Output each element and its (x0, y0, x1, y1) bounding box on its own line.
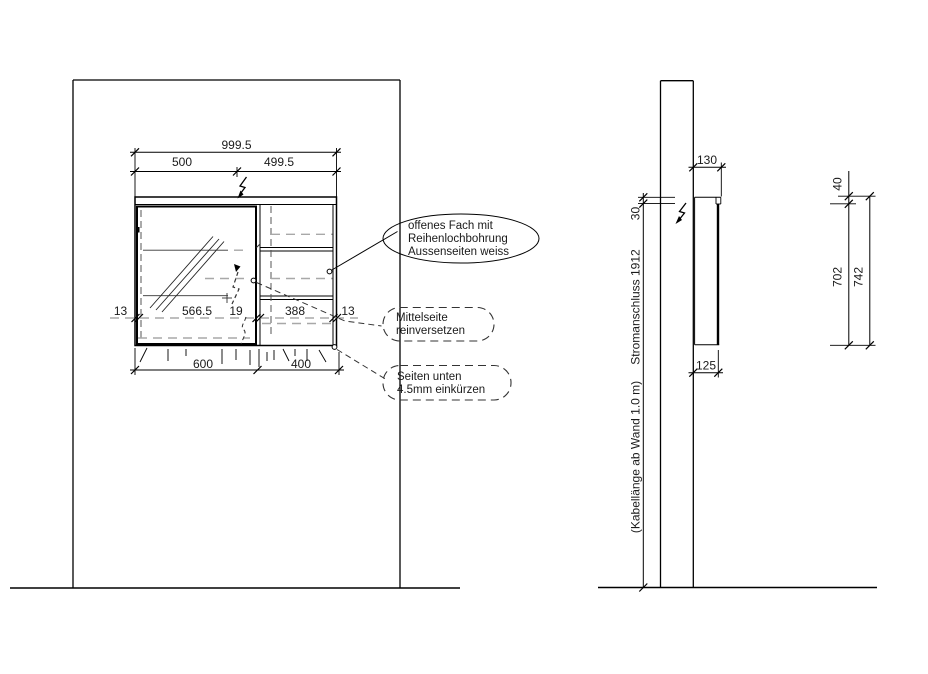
technical-drawing-canvas: 999.5 500 499.5 13 566.5 1 (0, 0, 928, 674)
mirror-diagonal (150, 237, 213, 309)
dim-body-height: 702 (831, 267, 845, 287)
hash-slash (319, 350, 326, 362)
leaders (251, 232, 397, 381)
dim-right-half: 499.5 (264, 155, 294, 169)
front-middle-dimension-chain: 13 566.5 19 388 13 (114, 304, 355, 322)
leader-dot (251, 278, 256, 283)
dim-bottom-right: 400 (291, 357, 311, 371)
dim-depth-top: 130 (697, 153, 717, 167)
cable-curve-dashed (241, 317, 246, 344)
cabinet-side-profile (695, 197, 721, 344)
dim-left-half: 500 (172, 155, 192, 169)
callout-middle-panel-line1: Mittelseite (396, 312, 448, 324)
front-bottom-dimensions: 600 400 (130, 348, 344, 375)
callout-open-shelf-line1: offenes Fach mit (408, 220, 494, 232)
wall-front-outline (10, 80, 460, 588)
bolt-zigzag (240, 177, 247, 194)
dim-mid: 19 (229, 304, 243, 318)
leader-solid (331, 232, 398, 271)
side-view: 130 125 30 Stromanschluss 1912 (Kabellän… (598, 81, 877, 592)
power-connection-dimension: 30 Stromanschluss 1912 (Kabellänge ab Wa… (629, 193, 687, 592)
mirror-symbol (150, 237, 224, 313)
front-view: 999.5 500 499.5 13 566.5 1 (10, 80, 460, 588)
power-bolt-icon (238, 177, 247, 199)
mirror-diagonal (162, 242, 224, 313)
power-connection-label: Stromanschluss 1912 (629, 249, 643, 365)
power-arrowhead (234, 264, 241, 272)
callout-open-shelf: offenes Fach mit Reihenlochbohrung Ausse… (383, 214, 539, 263)
dim-side-left: 13 (114, 304, 128, 318)
door-panel (137, 207, 256, 345)
dim-total-width: 999.5 (221, 138, 251, 152)
mirror-diagonal (156, 239, 219, 310)
dim-power-offset: 30 (629, 207, 643, 221)
dim-depth-bottom: 125 (696, 359, 716, 373)
callout-open-shelf-line2: Reihenlochbohrung (408, 233, 508, 245)
callout-sides-bottom-line1: Seiten unten (397, 371, 462, 383)
cabinet-front (110, 197, 358, 346)
dim-bottom-left: 600 (193, 357, 213, 371)
hash-slash (283, 349, 289, 361)
dim-side-right: 13 (341, 304, 355, 318)
hash-slash (140, 348, 147, 362)
power-bolt-dashed (232, 272, 239, 304)
dim-total-height: 742 (852, 267, 866, 287)
dim-top-gap: 40 (831, 177, 845, 191)
leader-dot (327, 269, 332, 274)
depth-top-dimension: 130 (689, 153, 727, 197)
height-dimension-stack: 40 702 742 (830, 171, 876, 349)
drawing-svg: 999.5 500 499.5 13 566.5 1 (0, 0, 928, 674)
callout-open-shelf-line3: Aussenseiten weiss (408, 246, 509, 258)
power-bolt-icon-side (676, 203, 687, 224)
cable-length-label: (Kabellänge ab Wand 1.0 m) (629, 381, 643, 533)
leader-dot (332, 345, 337, 350)
callout-sides-bottom-line2: 4.5mm einkürzen (397, 384, 485, 396)
callout-middle-panel: Mittelseite reinversetzen (383, 308, 494, 342)
dim-open: 388 (285, 304, 305, 318)
callout-middle-panel-line2: reinversetzen (396, 325, 465, 337)
front-top-dimensions: 999.5 500 499.5 (130, 138, 341, 199)
cabinet-outer-rect (135, 197, 337, 346)
leader-dashed (257, 283, 382, 327)
callout-sides-bottom: Seiten unten 4.5mm einkürzen (383, 366, 511, 401)
hinge-mark (136, 227, 140, 233)
dim-door: 566.5 (182, 304, 212, 318)
leader-dashed (337, 350, 387, 381)
